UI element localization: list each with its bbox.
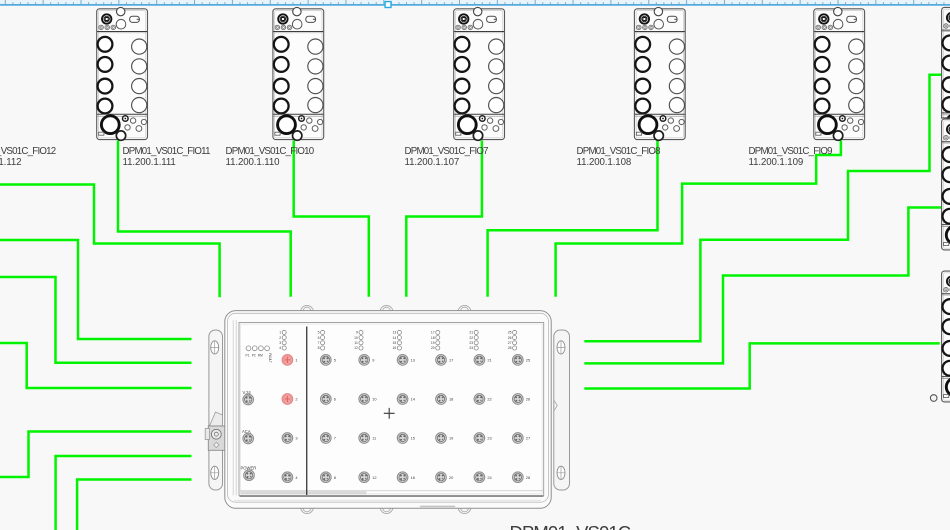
svg-text:13: 13: [393, 331, 397, 335]
svg-text:27: 27: [508, 341, 512, 345]
svg-text:1: 1: [295, 358, 297, 363]
svg-text:11: 11: [372, 436, 376, 441]
svg-text:22: 22: [469, 336, 473, 340]
svg-text:DPM01_VS01C_FIO10: DPM01_VS01C_FIO10: [226, 146, 315, 157]
svg-text:3: 3: [279, 341, 281, 345]
svg-text:26: 26: [508, 336, 512, 340]
svg-text:5: 5: [318, 331, 320, 335]
svg-text:12: 12: [354, 346, 358, 350]
svg-text:19: 19: [449, 436, 453, 441]
svg-text:2: 2: [279, 336, 281, 340]
svg-text:23: 23: [469, 341, 473, 345]
svg-text:15: 15: [411, 436, 415, 441]
svg-text:13: 13: [411, 358, 415, 363]
svg-text:5: 5: [334, 358, 336, 363]
svg-text:12: 12: [372, 475, 376, 480]
svg-text:DPM01_VS01C: DPM01_VS01C: [510, 522, 631, 530]
svg-text:1: 1: [279, 331, 281, 335]
svg-text:DPM01_VS01C_FIO12: DPM01_VS01C_FIO12: [0, 146, 56, 157]
svg-text:27: 27: [526, 436, 530, 441]
svg-text:18: 18: [431, 336, 435, 340]
svg-text:21: 21: [469, 331, 473, 335]
svg-text:11.200.1.109: 11.200.1.109: [749, 157, 804, 168]
svg-text:17: 17: [449, 358, 453, 363]
svg-text:9: 9: [356, 331, 358, 335]
svg-text:21: 21: [487, 358, 491, 363]
svg-text:6: 6: [334, 397, 336, 402]
svg-text:15: 15: [393, 341, 397, 345]
svg-text:4: 4: [279, 346, 281, 350]
svg-text:14: 14: [393, 336, 397, 340]
svg-text:25: 25: [526, 358, 530, 363]
svg-text:16: 16: [411, 475, 415, 480]
svg-text:9: 9: [372, 358, 374, 363]
svg-text:18: 18: [449, 397, 453, 402]
svg-text:16: 16: [393, 346, 397, 350]
svg-text:2: 2: [295, 397, 297, 402]
svg-text:P2: P2: [252, 354, 256, 358]
svg-text:8: 8: [334, 475, 336, 480]
svg-text:25: 25: [508, 331, 512, 335]
svg-text:11.200.1.112: 11.200.1.112: [0, 157, 21, 168]
svg-text:19: 19: [431, 341, 435, 345]
svg-text:DPM01_VS01C_FIO11: DPM01_VS01C_FIO11: [123, 146, 211, 157]
svg-text:23: 23: [487, 436, 491, 441]
svg-text:3: 3: [295, 436, 297, 441]
svg-text:22: 22: [487, 397, 491, 402]
svg-text:26: 26: [526, 397, 530, 402]
svg-text:11.200.1.111: 11.200.1.111: [123, 157, 176, 168]
svg-text:FAULT: FAULT: [268, 353, 272, 363]
svg-text:10: 10: [354, 336, 358, 340]
svg-text:7: 7: [318, 341, 320, 345]
svg-text:6: 6: [318, 336, 320, 340]
svg-text:7: 7: [334, 436, 336, 441]
svg-text:11.200.1.107: 11.200.1.107: [405, 157, 460, 168]
svg-text:17: 17: [431, 331, 435, 335]
svg-text:P1: P1: [246, 354, 250, 358]
svg-text:8: 8: [318, 346, 320, 350]
svg-text:RM: RM: [258, 354, 263, 358]
svg-text:DPM01_VS01C_FIO9: DPM01_VS01C_FIO9: [749, 146, 833, 157]
svg-text:11: 11: [354, 341, 358, 345]
svg-text:11.200.1.108: 11.200.1.108: [577, 157, 632, 168]
svg-text:28: 28: [508, 346, 512, 350]
svg-text:DPM01_VS01C_FIO7: DPM01_VS01C_FIO7: [405, 146, 489, 157]
svg-text:20: 20: [431, 346, 435, 350]
svg-text:11.200.1.110: 11.200.1.110: [226, 157, 281, 168]
svg-text:24: 24: [469, 346, 473, 350]
svg-text:28: 28: [526, 475, 530, 480]
svg-text:DPM01_VS01C_FIO8: DPM01_VS01C_FIO8: [577, 146, 661, 157]
